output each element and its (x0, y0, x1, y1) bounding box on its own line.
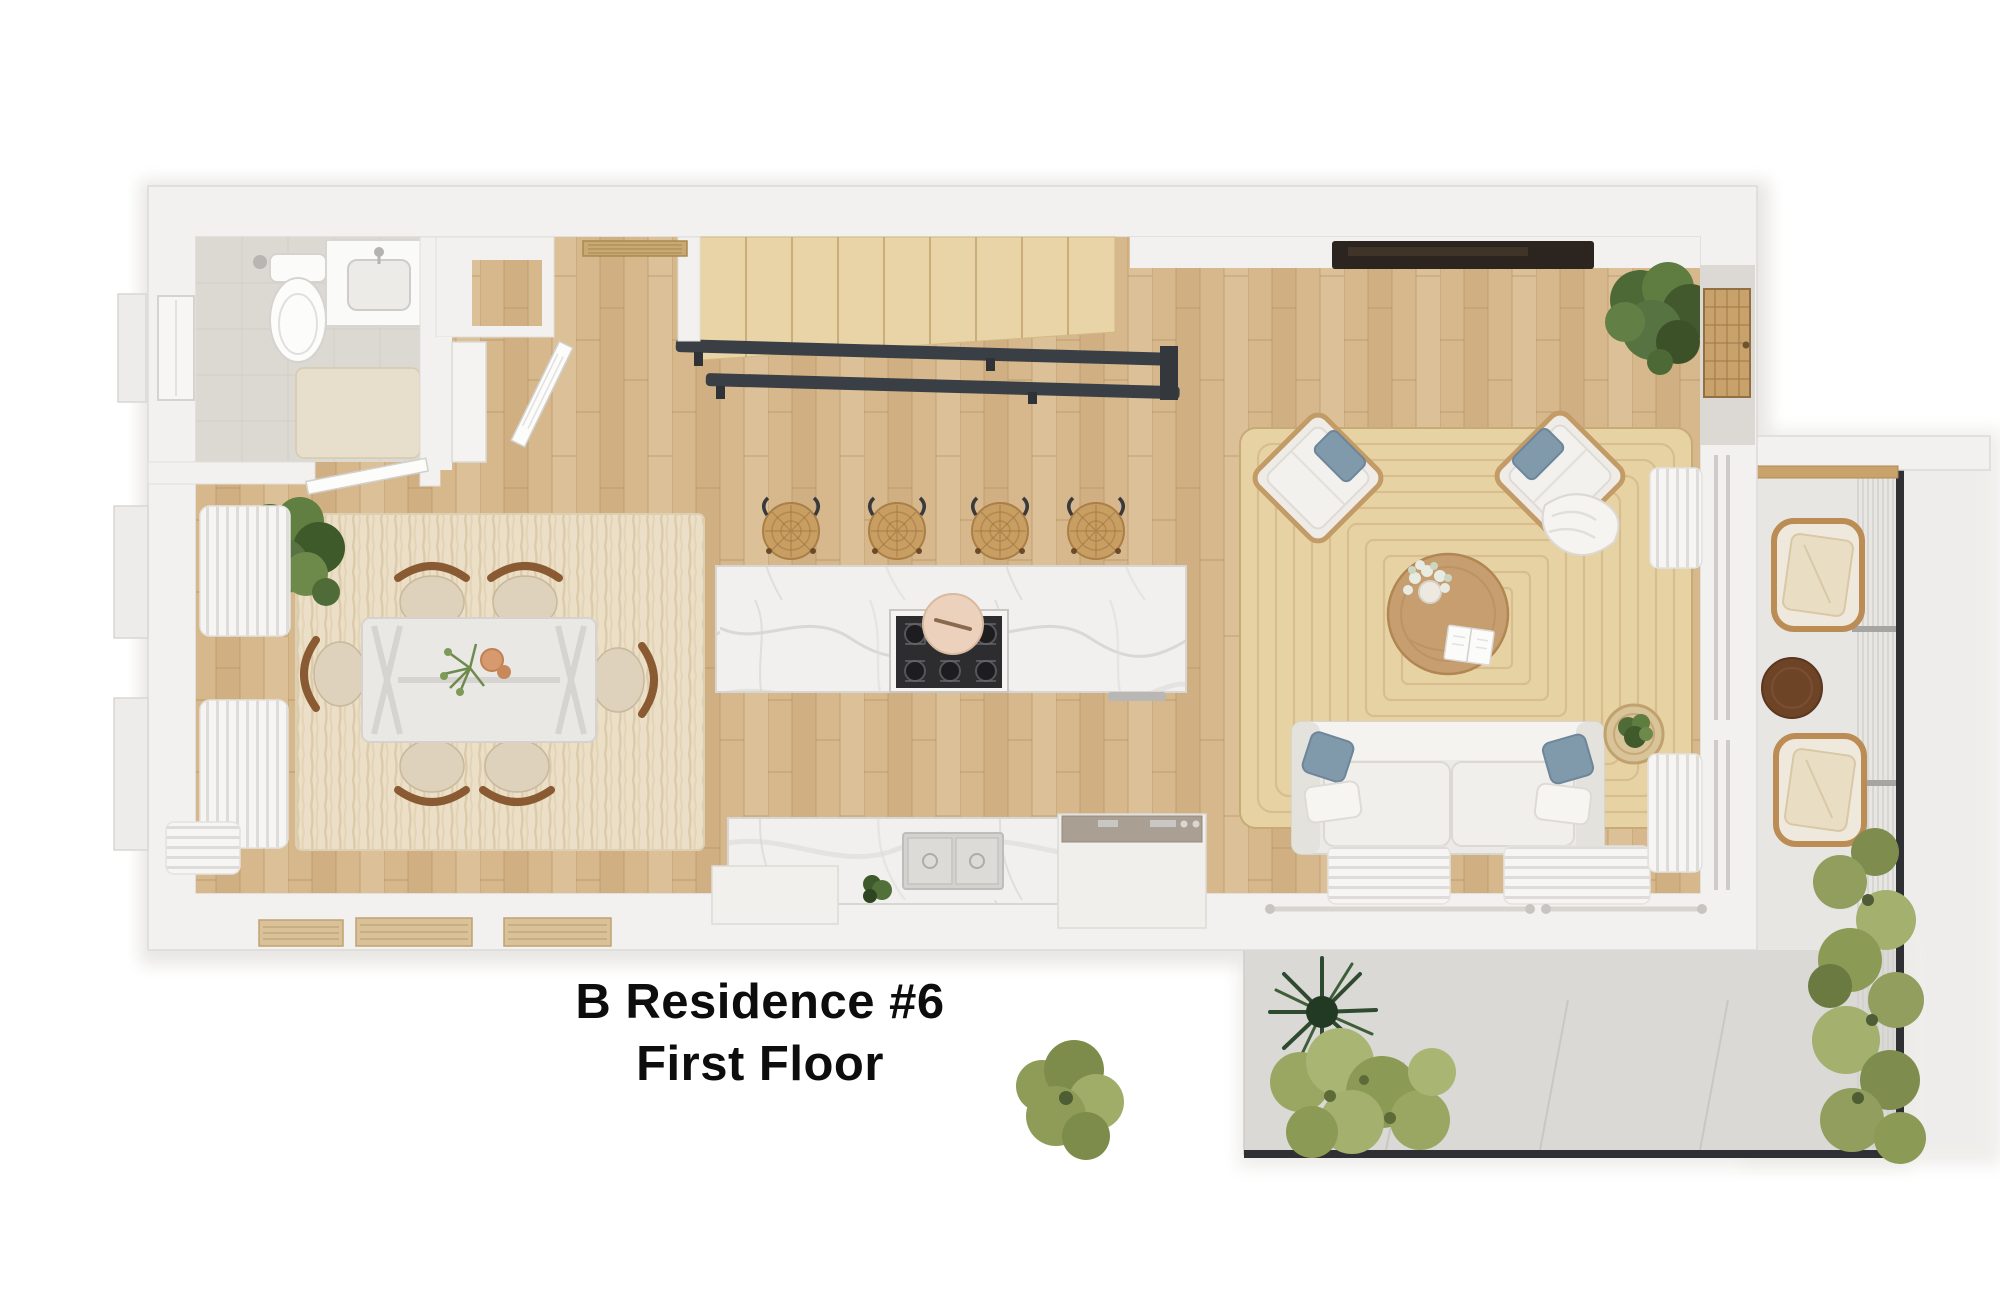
counter-cabinet (712, 866, 838, 924)
floor-plan-page: B Residence #6 First Floor (0, 0, 2000, 1292)
sink-basin (348, 260, 410, 310)
window-sill-shutters (259, 918, 611, 946)
dining-chair (592, 646, 654, 714)
kitchen-sink (903, 833, 1003, 889)
faucet (1098, 820, 1118, 827)
floor-plan-rendering (0, 0, 2000, 1292)
bathroom (158, 237, 422, 462)
coffee-table (1388, 554, 1508, 674)
curtain (1504, 846, 1650, 904)
kitchen-island (716, 566, 1186, 701)
curtain (1328, 846, 1450, 904)
dining-table (362, 618, 596, 742)
bathroom-bottom-wall (148, 462, 315, 484)
curtain (166, 822, 240, 874)
closet-upper (436, 237, 554, 337)
curtain (1650, 468, 1702, 568)
curtain (200, 506, 290, 636)
sofa-pillow-white (1304, 780, 1362, 823)
plan-title: B Residence #6 First Floor (430, 972, 1090, 1095)
entry-door (1704, 289, 1750, 397)
dishwasher-handle (1108, 692, 1166, 701)
sofa (1292, 722, 1604, 854)
entry (1700, 265, 1755, 445)
balcony-side-table (1762, 658, 1822, 718)
balcony-chair (1774, 521, 1862, 629)
plan-title-line1: B Residence #6 (430, 972, 1090, 1034)
exterior-window-sills (114, 294, 148, 850)
closet-cabinet (452, 342, 486, 462)
plan-title-line2: First Floor (430, 1034, 1090, 1096)
balcony-chair (1776, 736, 1864, 844)
tv-console (1332, 241, 1594, 269)
faucet (1150, 820, 1176, 827)
toilet-flush-button (253, 255, 267, 269)
dining-chair (398, 740, 466, 802)
balcony-threshold (1756, 466, 1898, 478)
sofa-pillow-white (1534, 783, 1592, 825)
open-book (1444, 625, 1494, 665)
dining-chair (483, 740, 551, 802)
cutting-board (923, 594, 983, 654)
floor-vent (583, 241, 687, 256)
bathroom-vanity (326, 240, 422, 326)
dining-chair (304, 640, 366, 708)
curtain (1648, 754, 1702, 872)
door-handle (1743, 342, 1750, 349)
kitchen-side-counter (1058, 814, 1206, 928)
bath-mat (296, 368, 420, 458)
